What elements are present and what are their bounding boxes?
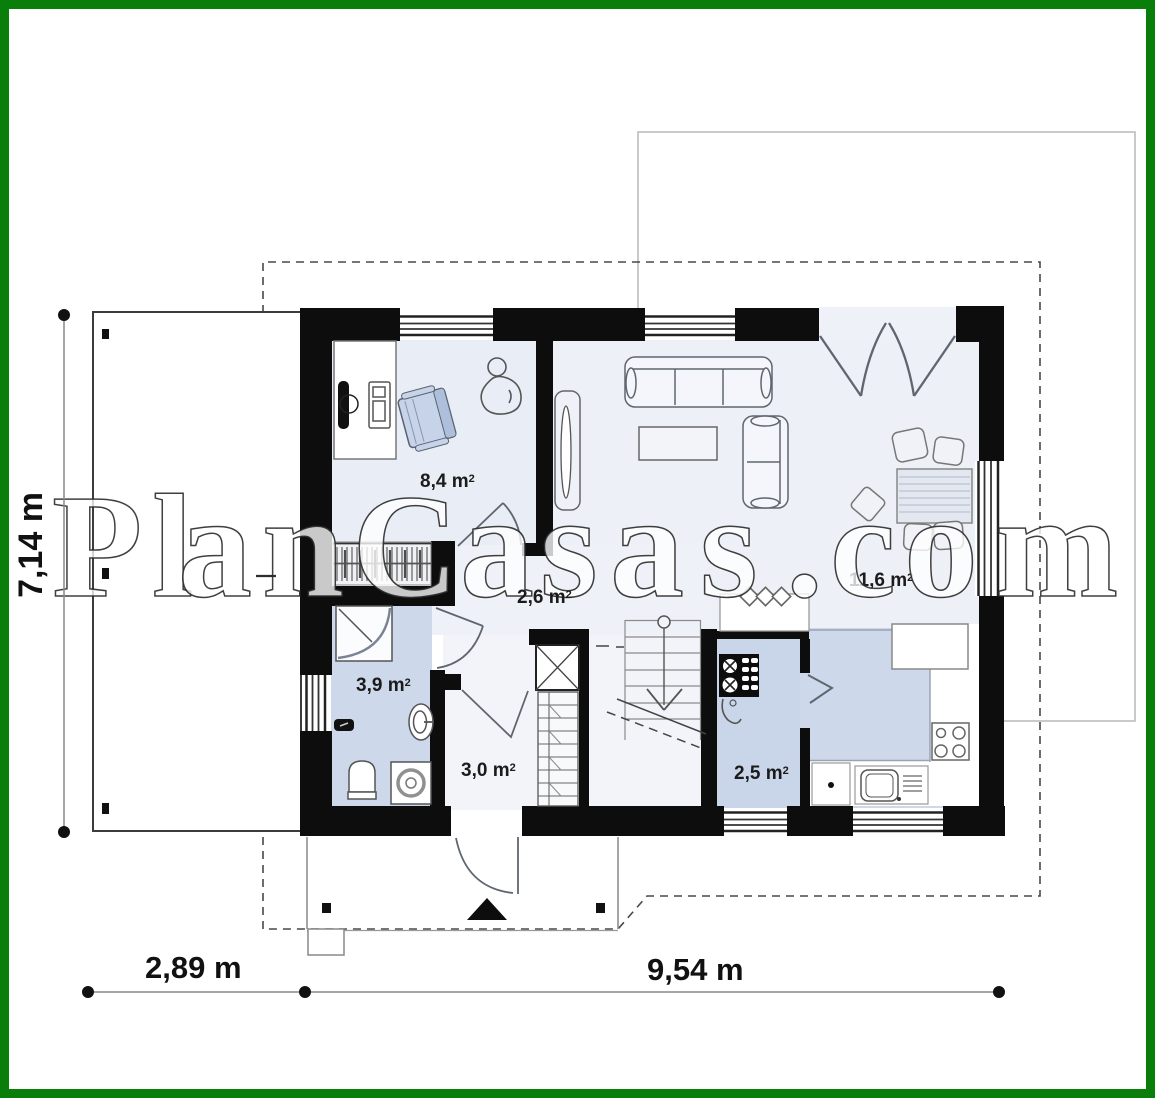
svg-text:PlanCasas.com: PlanCasas.com — [52, 465, 1118, 629]
svg-text:3,9 m2: 3,9 m2 — [356, 675, 411, 696]
svg-text:2,89 m: 2,89 m — [145, 950, 242, 985]
svg-text:2,6 m2: 2,6 m2 — [517, 587, 572, 608]
svg-text:2,5 m2: 2,5 m2 — [734, 763, 789, 784]
svg-text:7,14 m: 7,14 m — [12, 492, 50, 598]
svg-text:3,0 m2: 3,0 m2 — [461, 760, 516, 781]
svg-text:9,54 m: 9,54 m — [647, 952, 744, 987]
